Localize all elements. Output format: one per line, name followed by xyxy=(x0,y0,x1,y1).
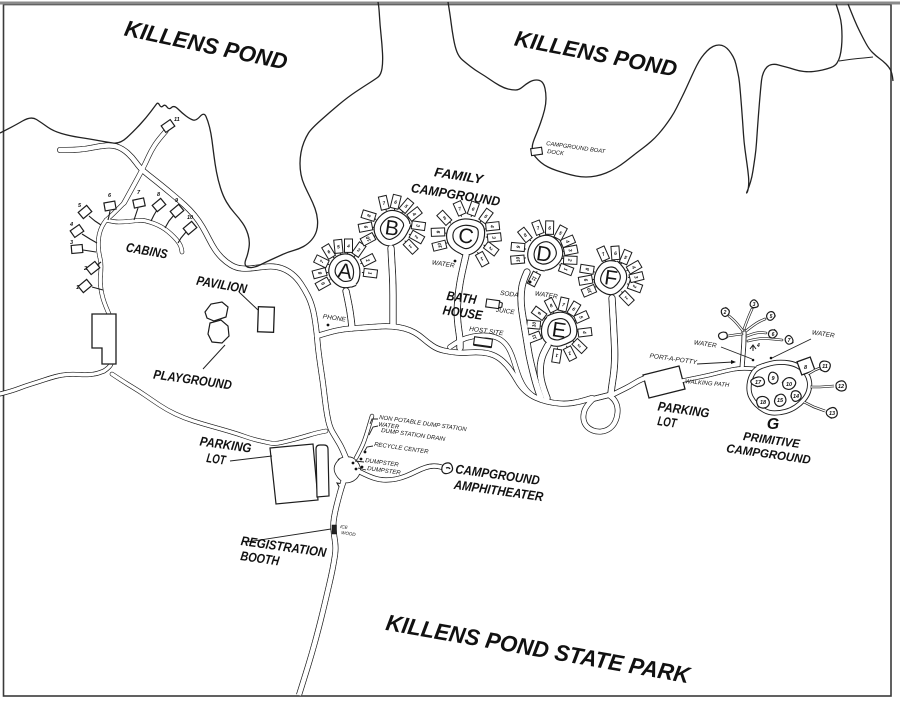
svg-text:2: 2 xyxy=(83,266,87,272)
svg-text:WATER: WATER xyxy=(431,259,455,269)
svg-text:2: 2 xyxy=(723,310,727,316)
svg-text:6: 6 xyxy=(548,226,551,232)
svg-text:3: 3 xyxy=(70,240,73,246)
svg-text:6: 6 xyxy=(108,193,112,199)
svg-text:KILLENS POND STATE PARK: KILLENS POND STATE PARK xyxy=(384,609,693,688)
svg-text:17: 17 xyxy=(755,380,762,386)
svg-text:WATER: WATER xyxy=(534,290,558,300)
svg-text:5: 5 xyxy=(770,314,773,320)
svg-text:WATER: WATER xyxy=(693,339,717,349)
svg-text:10: 10 xyxy=(531,321,537,327)
svg-text:12: 12 xyxy=(838,384,844,390)
svg-text:5: 5 xyxy=(78,203,82,209)
svg-text:KILLENS POND: KILLENS POND xyxy=(122,16,290,75)
svg-text:8: 8 xyxy=(157,192,161,198)
svg-text:FAMILY: FAMILY xyxy=(433,164,485,187)
svg-text:WOOD: WOOD xyxy=(341,530,357,537)
svg-text:10: 10 xyxy=(515,256,521,262)
svg-text:LOT: LOT xyxy=(206,450,228,468)
svg-text:C: C xyxy=(457,224,475,249)
svg-text:HOUSE: HOUSE xyxy=(442,302,484,322)
svg-text:3: 3 xyxy=(753,302,756,308)
svg-text:4: 4 xyxy=(69,222,73,228)
svg-text:15: 15 xyxy=(777,398,784,404)
svg-text:PORT-A-POTTY: PORT-A-POTTY xyxy=(649,353,698,367)
svg-text:10: 10 xyxy=(187,215,193,221)
svg-text:DUMP STATION DRAIN: DUMP STATION DRAIN xyxy=(381,428,446,443)
svg-text:JUICE: JUICE xyxy=(494,307,515,317)
svg-text:1: 1 xyxy=(76,285,79,291)
svg-text:4: 4 xyxy=(346,244,350,250)
svg-text:G: G xyxy=(767,416,779,433)
svg-text:RECYCLE CENTER: RECYCLE CENTER xyxy=(374,442,430,456)
svg-text:WALKING PATH: WALKING PATH xyxy=(685,379,730,389)
svg-text:D: D xyxy=(535,242,553,267)
svg-text:18: 18 xyxy=(760,400,767,406)
svg-text:7: 7 xyxy=(788,338,791,344)
svg-text:2: 2 xyxy=(566,258,572,262)
svg-text:PLAYGROUND: PLAYGROUND xyxy=(152,367,233,393)
svg-text:CABINS: CABINS xyxy=(125,240,169,262)
svg-text:10: 10 xyxy=(786,382,792,388)
svg-text:PHONE: PHONE xyxy=(322,313,347,323)
svg-text:13: 13 xyxy=(829,411,835,417)
svg-text:LOT: LOT xyxy=(657,413,679,431)
svg-text:7: 7 xyxy=(137,190,141,196)
svg-text:SODA: SODA xyxy=(500,290,519,299)
svg-text:4: 4 xyxy=(756,343,760,349)
svg-text:11: 11 xyxy=(822,364,828,370)
svg-text:DOCK: DOCK xyxy=(547,149,566,157)
svg-text:6: 6 xyxy=(772,332,775,338)
svg-text:KILLENS POND: KILLENS POND xyxy=(513,26,680,82)
svg-text:PAVILION: PAVILION xyxy=(195,273,248,297)
svg-text:WATER: WATER xyxy=(811,329,835,339)
svg-text:11: 11 xyxy=(174,117,180,123)
svg-text:14: 14 xyxy=(793,394,799,400)
